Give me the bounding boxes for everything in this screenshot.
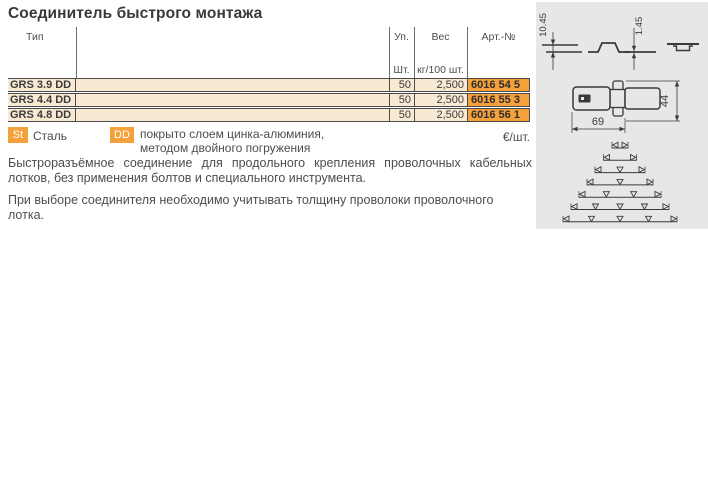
dim-label-length: 69	[592, 116, 604, 128]
cell-weight: 2,500	[414, 109, 467, 121]
end-view	[667, 44, 699, 51]
cell-filler	[76, 94, 389, 106]
steel-badge: St	[8, 127, 28, 143]
technical-drawing-panel: 10.45 1.45	[536, 2, 708, 229]
price-unit-label: €/шт.	[503, 130, 530, 144]
coating-badge: DD	[110, 127, 134, 143]
dim-label-thickness: 1.45	[634, 17, 645, 36]
cell-type: GRS 4.4 DD	[8, 94, 76, 106]
cell-weight: 2,500	[414, 94, 467, 106]
header-divider	[76, 27, 77, 78]
cell-pack: 50	[389, 109, 414, 121]
cell-pack: 50	[389, 94, 414, 106]
cell-weight: 2,500	[414, 79, 467, 91]
steel-label: Сталь	[33, 129, 67, 143]
profile-side-view	[542, 32, 630, 70]
coating-line-1: покрыто слоем цинка-алюминия,	[140, 127, 324, 141]
material-legend: St Сталь DD покрыто слоем цинка-алюминия…	[8, 127, 530, 155]
col-header-weight: Вес	[414, 31, 467, 43]
col-header-type: Тип	[26, 31, 44, 43]
col-header-pack-unit: Шт.	[389, 64, 414, 76]
coating-description: покрыто слоем цинка-алюминия, методом дв…	[140, 128, 324, 155]
col-header-weight-unit: кг/100 шт.	[414, 64, 467, 76]
connector-top-view	[573, 81, 660, 116]
description-paragraph-2: При выборе соединителя необходимо учитыв…	[8, 193, 532, 223]
col-header-art-no: Арт.-№	[467, 31, 530, 43]
mounting-positions-diagram	[563, 142, 677, 222]
col-header-pack: Уп.	[389, 31, 414, 43]
cell-type: GRS 3.9 DD	[8, 79, 76, 91]
cell-type: GRS 4.8 DD	[8, 109, 76, 121]
table-row: GRS 4.8 DD 50 2,500 6016 56 1	[8, 108, 530, 122]
catalog-page: Соединитель быстрого монтажа Тип Уп. Вес…	[0, 0, 708, 480]
cell-art-no[interactable]: 6016 54 5	[467, 79, 530, 91]
table-row: GRS 4.4 DD 50 2,500 6016 55 3	[8, 93, 530, 107]
dim-label-profile-height: 10.45	[538, 13, 549, 37]
table-header: Тип Уп. Вес Арт.-№ Шт. кг/100 шт.	[8, 27, 530, 78]
table-row: GRS 3.9 DD 50 2,500 6016 54 5	[8, 78, 530, 92]
product-description: Быстроразъёмное соединение для продольно…	[8, 156, 532, 230]
cell-art-no[interactable]: 6016 56 1	[467, 109, 530, 121]
catalog-table: Тип Уп. Вес Арт.-№ Шт. кг/100 шт. GRS 3.…	[8, 27, 530, 123]
technical-drawing: 10.45 1.45	[536, 2, 708, 229]
dim-label-width: 44	[659, 95, 671, 107]
cell-filler	[76, 109, 389, 121]
coating-line-2: методом двойного погружения	[140, 141, 310, 155]
page-title: Соединитель быстрого монтажа	[8, 5, 262, 23]
description-paragraph-1: Быстроразъёмное соединение для продольно…	[8, 156, 532, 186]
connector-slot-mark	[579, 95, 591, 103]
cell-pack: 50	[389, 79, 414, 91]
cell-art-no[interactable]: 6016 55 3	[467, 94, 530, 106]
cell-filler	[76, 79, 389, 91]
